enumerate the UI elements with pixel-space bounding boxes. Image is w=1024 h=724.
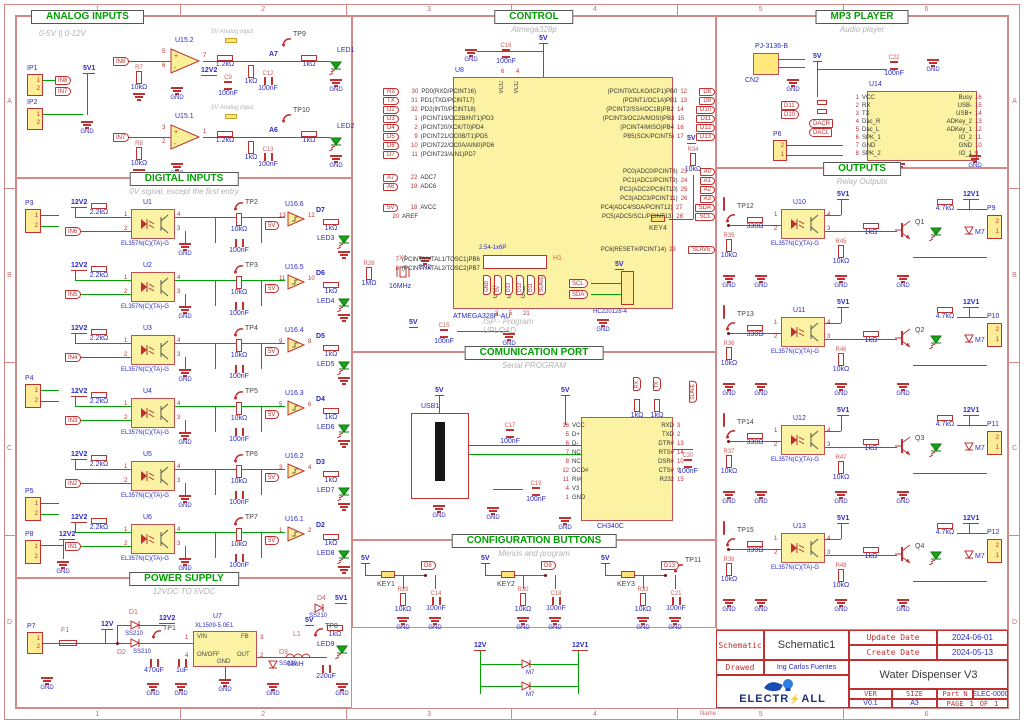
wire [493,489,523,490]
speaker-connector[interactable]: 21 [773,140,787,161]
key-button[interactable] [381,571,395,578]
gnd-symbol: GND [669,617,681,625]
power-rail: 12V [474,642,486,651]
optocoupler-icon [133,337,173,363]
output-connector[interactable]: 21 [987,431,1002,455]
opamp-icon[interactable]: +- [169,123,203,151]
net-flag: D9 [699,97,715,105]
pin-name: USB- [958,103,972,109]
brand-text: ELECTR⚡ALL [739,693,826,705]
gnd-label: GND [968,163,981,169]
capacitor-c16[interactable]: C16100nF [493,43,519,65]
pin-number: 5 [553,432,569,438]
resistor[interactable]: 4.7kΩ [933,199,957,212]
wire [261,406,262,432]
connector-ip1[interactable]: 12 [27,74,43,96]
cap-ref: C9 [215,75,241,81]
connector[interactable]: 12 [25,209,41,233]
name-label: Name : [700,711,719,717]
resistor[interactable]: 1kΩ [859,439,883,452]
pin-name: (PCINT22/OC0A/AIN0)PD6 [421,143,494,149]
resistor[interactable]: 1kΩ [319,471,343,484]
wire [75,459,76,469]
section-title: COMUNICATION PORT [465,346,604,360]
connector-p7[interactable]: 12 [27,632,43,654]
pin: 2 [26,223,40,229]
res-value: 10kΩ [717,576,741,583]
diode-icon[interactable] [129,620,145,630]
optocoupler-part: EL357N(C)(TA)-G [121,304,169,310]
pin-number: 12 [308,213,315,219]
ch340-pins-right: 3RXD2TXD13DTR#14RTS#10DSR#9CTS#15R232 [593,421,693,484]
net-flag: 5V [265,536,279,545]
led-icon[interactable] [337,233,351,249]
gnd-symbol: GND [897,383,909,391]
capacitor[interactable]: 220uF [313,665,339,680]
pin-number: 5 [162,49,165,55]
ic-pin-row: D610(PCINT22/OC0A/AIN0)PD6 [383,141,663,150]
ic-pin-row: 11IO_2 [851,134,991,142]
output-connector[interactable]: 21 [987,539,1002,563]
transistor-icon[interactable] [895,435,913,457]
key-label: KEY1 [377,581,395,588]
cap-plates [264,153,273,161]
section-subtitle: Audio player [840,25,884,34]
diode-icon[interactable] [520,681,536,691]
pin-number: 7 [553,450,569,456]
diode-icon[interactable] [963,549,975,563]
gnd-symbol: GND [787,79,799,87]
resistor[interactable]: R2910kΩ [391,587,415,613]
pin-number: 13 [975,119,991,125]
res-value: 10kΩ [631,606,655,613]
led-ref: LED2 [337,123,355,130]
pin-number: 8 [308,339,311,345]
testpoint-icon[interactable] [151,629,163,639]
pin-name: IO_2 [959,135,972,141]
gnd-label: GND [329,87,342,93]
pin: 1 [26,213,40,219]
pin-number: 2 [162,139,165,145]
testpoint-icon[interactable] [725,213,737,223]
resistor[interactable]: 2.2kΩ [87,266,111,279]
audio-jack[interactable] [753,53,779,75]
titleblock-drawed-value: Ing Carlos Fuentes [764,660,849,675]
led-icon[interactable] [337,548,351,564]
key-label: KEY3 [617,581,635,588]
schmitt-buffer-icon[interactable] [287,337,307,353]
capacitor[interactable]: 100nF [226,302,252,317]
transistor-icon[interactable] [895,327,913,349]
capacitor[interactable]: 100nF [226,239,252,254]
output-connector[interactable]: 21 [987,215,1002,239]
resistor[interactable]: 10kΩ [227,528,251,548]
resistor[interactable]: 2.2kΩ [87,392,111,405]
titleblock-schematic-label: Schematic [716,630,764,660]
pin-number: 1 [774,536,777,542]
wire [123,61,171,62]
res-value: 10kΩ [717,468,741,475]
led-icon[interactable] [929,225,943,241]
pin-name: D+ [572,432,580,438]
capacitor-c22[interactable]: C22100nF [881,55,907,77]
pin-number: 1 [124,527,127,533]
section-subtitle: Relay Outputs [837,177,888,186]
wire [365,575,425,576]
section-subtitle: Atmega328p [511,25,556,34]
resistor[interactable]: 330Ω [743,541,767,554]
resistor-r28[interactable]: R281MΩ [357,261,381,287]
resistor[interactable]: 4.7kΩ [933,523,957,536]
resistor[interactable]: 1kΩ [319,219,343,232]
net-flag: TX [383,97,399,105]
junction [664,574,667,577]
diode-icon[interactable] [520,659,536,669]
resistor[interactable]: R3810kΩ [717,557,741,583]
res-value: 10kΩ [227,478,251,485]
pin-name: ADC7 [420,175,436,181]
testpoint-icon[interactable] [725,537,737,547]
power-rail: 5V [561,387,570,396]
cap-value: 100nF [255,85,281,92]
testpoint-icon[interactable] [281,113,293,123]
capacitor-c15[interactable]: C15100nF [431,323,457,345]
jumper[interactable] [225,114,237,119]
pin-name: ADKey_2 [947,119,972,125]
res-value: 1kΩ [297,137,321,144]
gnd-label: GND [722,391,735,397]
connector-ref: P8 [25,531,34,538]
net-label: D6 [316,270,325,277]
led-icon[interactable] [929,333,943,349]
testpoint-label: TP4 [245,325,258,332]
resistor[interactable]: 1kΩ [319,282,343,295]
gnd-symbol: GND [897,491,909,499]
resistor[interactable]: 1kΩ [319,345,343,358]
testpoint-icon[interactable] [233,516,245,526]
diode-icon[interactable] [963,225,975,239]
ic-pin-row: 9CTS# [593,466,693,475]
electroall-logo-icon [761,678,805,693]
optocoupler-icon [783,427,823,453]
optocoupler-icon [133,463,173,489]
resistor[interactable]: 4.7kΩ [933,307,957,320]
net-flag: D10 [781,110,799,119]
resistor[interactable]: 1kΩ [859,547,883,560]
testpoint-icon[interactable] [725,321,737,331]
diode-part: SS210 [309,613,327,619]
fuse[interactable] [59,640,77,646]
res-ref: R8 [127,141,151,147]
connector-p8[interactable]: 12 [25,540,41,564]
digital-channels: 12V2 2.2kΩ IN6 U1 EL357N(C)(TA)-G 1 2 4 … [65,199,353,577]
pin-name: VCC [572,423,585,429]
pin-number: 18 [401,205,417,211]
regulator-ref: U7 [213,613,222,620]
resistor[interactable]: 1kΩ [297,131,321,144]
diode-icon[interactable] [963,333,975,347]
testpoint-icon[interactable] [233,390,245,400]
res-value: 1kΩ [323,631,347,638]
opamp-icon[interactable]: +- [169,47,203,75]
resistor[interactable]: 1kΩ [319,534,343,547]
diode-icon[interactable] [129,638,145,648]
cap-value: 100nF [881,70,907,77]
resistor[interactable]: 2.2kΩ [87,329,111,342]
net-flag: 5V [265,410,279,419]
res-value: 10kΩ [391,606,415,613]
net-flag: IN7 [55,87,71,96]
gnd-symbol: GND [179,495,191,503]
capacitor[interactable]: 100nF [226,554,252,569]
connector-ref: P4 [25,375,34,382]
frame-row-letter: D [1009,536,1020,709]
resistor[interactable]: R3610kΩ [717,341,741,367]
pin-number: 9 [402,134,418,140]
resistor[interactable]: 2.2kΩ [87,203,111,216]
connector-ref: P11 [987,421,999,428]
pin-name: GND [217,659,230,665]
jumper[interactable] [225,38,237,43]
pin-name: PC4(ADC4/SDA/PCINT12) [601,205,673,211]
key-button[interactable] [621,571,635,578]
wire [787,145,843,146]
resistor[interactable]: 2.2kΩ [87,455,111,468]
pin-number: 4 [177,401,180,407]
testpoint-icon[interactable] [281,37,293,47]
wire [75,207,76,217]
res-value: 1kΩ [319,225,343,232]
ic-pin-row: D1014(PCINT2/SS#/OC1B)PB2 [509,105,715,114]
wire [969,415,970,425]
res-body [838,569,844,582]
wire [435,575,436,589]
schmitt-buffer-icon[interactable] [287,211,307,227]
resistor[interactable] [815,109,829,114]
capacitor-c9[interactable]: C9100nF [215,75,241,97]
cap-plates [506,429,514,438]
resistor[interactable]: 1kΩ [319,408,343,421]
cap-value: 100nF [226,499,252,506]
testpoint-icon[interactable] [233,201,245,211]
key-button[interactable] [501,571,515,578]
resistor[interactable]: R3010kΩ [511,587,535,613]
mp3-pins-right: 16Busy15USB-14USB+13ADKey_212ADKey_111IO… [851,94,991,158]
resistor[interactable]: R4810kΩ [829,563,853,589]
gnd-symbol: GND [487,507,499,515]
pin: 1 [774,152,786,158]
pin-name: (PCINT23/AIN1)PD7 [421,152,476,158]
pin-number: 1 [774,212,777,218]
wire [215,406,216,432]
pin-number: 14 [677,107,693,113]
testpoint-label: TP13 [737,311,754,318]
schmitt-buffer-icon[interactable] [287,274,307,290]
capacitor[interactable]: 470uF [141,659,167,674]
led-icon[interactable] [329,59,343,75]
wire [555,575,556,589]
resistor[interactable]: 1.2kΩ [213,131,237,144]
resistor[interactable]: R3510kΩ [717,233,741,259]
resistor[interactable]: R4510kΩ [829,239,853,265]
pin-name: (PCINT19/OC2B/INT1)PD3 [421,116,494,122]
pin: 1 [26,544,40,550]
gnd-label: GND [896,499,909,505]
resistor[interactable]: 330Ω [743,433,767,446]
testpoint-icon[interactable] [725,429,737,439]
optocoupler-ref: U13 [793,523,806,530]
diode-icon[interactable] [963,441,975,455]
ic-pin-row: 15USB- [851,102,991,110]
res-value: 1kΩ [859,445,883,452]
capacitor[interactable]: 100nF [226,365,252,380]
pin-name: (PCINT0/CLKO/ICP1)PB0 [608,89,678,95]
wire [913,257,987,258]
testpoint-icon[interactable] [233,264,245,274]
capacitor[interactable]: 1uF [169,659,195,674]
regulator-part: XL1509-5.0E1 [195,623,233,629]
display-connector[interactable] [621,271,634,305]
resistor[interactable]: R3710kΩ [717,449,741,475]
gnd-label: GND [548,625,561,631]
resistor[interactable]: 1kΩ [645,399,669,419]
power-rail: 12V2 [71,262,87,271]
connector[interactable]: 12 [25,384,41,408]
capacitor[interactable]: C14100nF [423,591,449,612]
led-icon[interactable] [329,135,343,151]
buffer-ref: U16.6 [285,201,304,208]
resistor[interactable]: R4610kΩ [829,347,853,373]
res-body [726,455,732,468]
capacitor-c19[interactable]: C19100nF [523,481,549,503]
testpoint-icon[interactable] [233,453,245,463]
resistor[interactable] [815,100,829,105]
gnd-symbol: GND [171,87,183,95]
section-comunication-port: COMUNICATION PORT Serial PROGRAM 5V USB1… [352,352,716,540]
power-rail: 5V1 [837,407,849,416]
capacitor[interactable]: C18100nF [543,591,569,612]
cap-value: 220uF [313,673,339,680]
output-connector[interactable]: 21 [987,323,1002,347]
buffer-ref: U16.3 [285,390,304,397]
led-icon[interactable] [335,643,349,659]
pin-number: 28 [676,214,692,220]
transistor-icon[interactable] [895,219,913,241]
cap-plates [235,239,244,247]
schmitt-buffer-icon[interactable] [287,526,307,542]
schmitt-buffer-icon[interactable] [287,463,307,479]
ic-pin-row: 9IO_1 [851,150,991,158]
connector[interactable]: 12 [25,497,41,521]
led-icon[interactable] [337,359,351,375]
pin-number: 7 [383,257,399,263]
cap-plates [552,597,561,605]
wire [841,307,842,323]
resistor[interactable]: R810kΩ [127,141,151,167]
of-number: 1 [994,700,998,708]
connector-ref: P5 [25,488,34,495]
led-icon[interactable] [929,549,943,565]
schmitt-buffer-icon[interactable] [287,400,307,416]
testpoint-icon[interactable] [233,327,245,337]
diode-part: SS210 [125,631,143,637]
output-channel: TP14 R3710kΩ GND 330Ω U12 EL357N(C)(TA)-… [717,407,1009,515]
resistor[interactable]: 10kΩ [227,276,251,296]
diode-icon[interactable] [267,659,279,673]
capacitor[interactable]: C13100nF [255,147,281,168]
net-flag: D11 [781,101,799,110]
diode-icon[interactable] [313,603,329,613]
pin-number: 4 [177,464,180,470]
resistor[interactable]: 1kΩ [297,55,321,68]
resistor[interactable]: 10kΩ [227,465,251,485]
pin-number: 3 [162,125,165,131]
note-label: 5V Analog input [211,105,253,111]
resistor[interactable]: R3310kΩ [631,587,655,613]
resistor[interactable]: R4710kΩ [829,455,853,481]
pin-number: 7 [203,53,206,59]
pin-number: 3 [677,423,693,429]
section-outputs: OUTPUTS Relay Outputs TP12 R3510kΩ GND 3… [716,168,1008,630]
res-body [248,65,254,78]
gnd-symbol: GND [835,491,847,499]
power-rail: 12V2 [71,514,87,523]
inductor-icon[interactable] [285,651,311,659]
led-icon[interactable] [337,422,351,438]
capacitor[interactable]: C12100nF [255,71,281,92]
wire [261,469,262,495]
led-icon[interactable] [337,485,351,501]
gnd-symbol [133,93,145,101]
connector-ref: P7 [27,623,36,630]
gnd-label: GND [754,283,767,289]
resistor[interactable]: 1kΩ [859,331,883,344]
resistor[interactable]: 1kΩ [859,223,883,236]
cap-value: 470uF [141,667,167,674]
usb-connector[interactable] [411,413,469,499]
resistor[interactable]: 10kΩ [227,402,251,422]
resistor[interactable]: 10kΩ [227,339,251,359]
ic-pin-row: D913(PCINT1/OC1A)PB1 [509,96,715,105]
res-body [838,245,844,258]
net-flag: SCL [569,279,588,288]
net-flag: D11 [527,275,535,295]
diode-ref: M7 [975,553,985,560]
capacitor-c17[interactable]: C17100nF [497,423,523,445]
connector-ip2[interactable]: 12 [27,108,43,130]
resistor[interactable]: 2.2kΩ [87,518,111,531]
led-icon[interactable] [929,441,943,457]
pin: 1 [988,553,1001,559]
resistor[interactable]: 330Ω [743,325,767,338]
resistor[interactable]: 10kΩ [227,213,251,233]
optocoupler-ref: U10 [793,199,806,206]
wire [913,473,987,474]
resistor[interactable]: 4.7kΩ [933,415,957,428]
resistor[interactable]: R710kΩ [127,65,151,91]
wire [185,231,186,243]
capacitor[interactable]: C21100nF [663,591,689,612]
transistor-icon[interactable] [895,543,913,565]
frame-row-letters-right: ABCD [1009,15,1020,709]
cap-value: 100nF [493,58,519,65]
capacitor[interactable]: 100nF [226,491,252,506]
led-icon[interactable] [337,296,351,312]
pin-number: 9 [677,468,693,474]
digital-channel: 12V2 2.2kΩ IN1 U6 EL357N(C)(TA)-G 1 2 4 … [65,514,353,577]
resistor[interactable]: 330Ω [743,217,767,230]
capacitor[interactable]: 100nF [226,428,252,443]
